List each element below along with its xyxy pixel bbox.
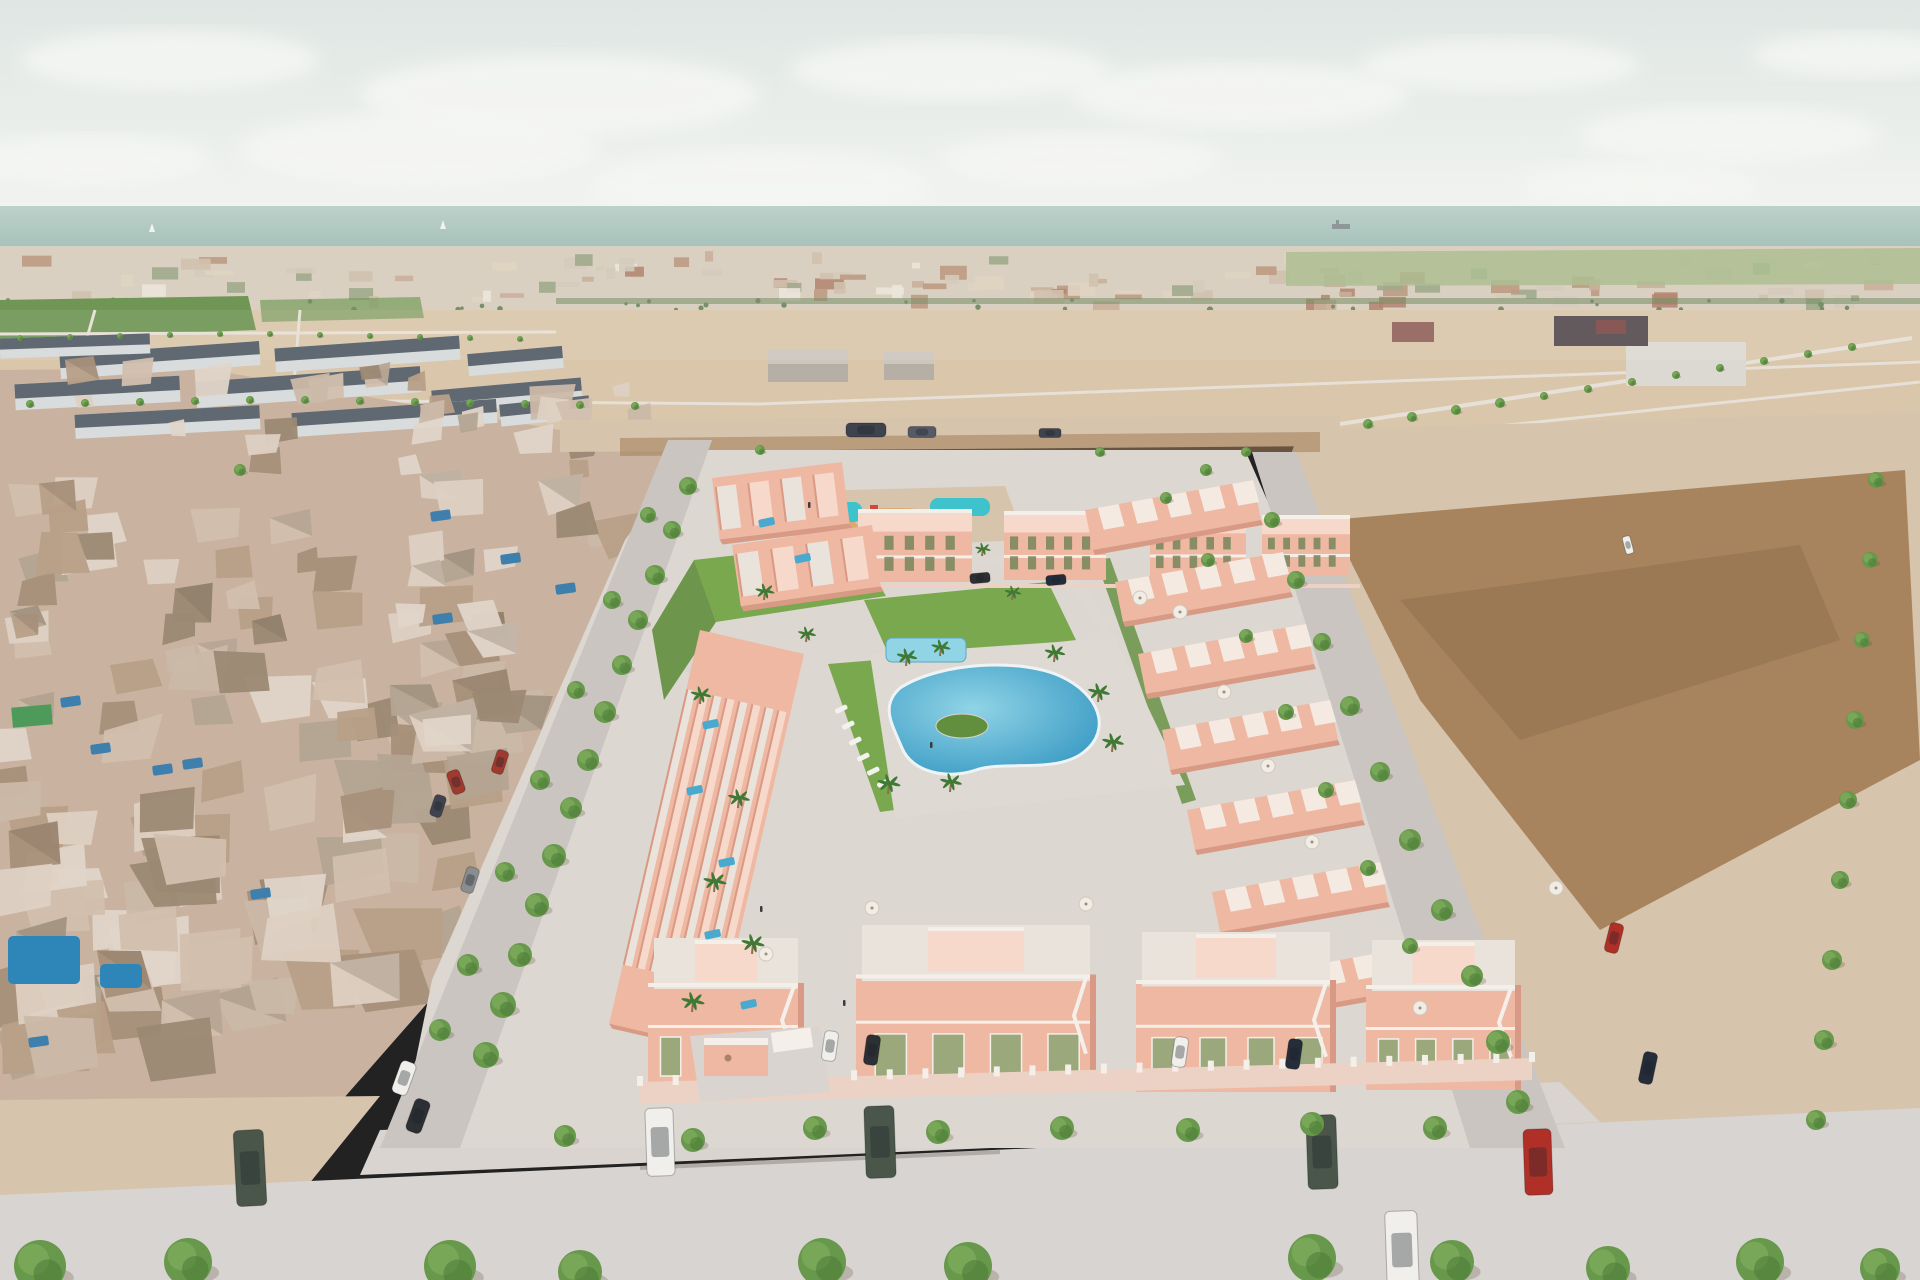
tree-shade	[585, 757, 597, 769]
car-roof	[857, 426, 875, 435]
apt-window	[1206, 537, 1214, 549]
apt-band	[1150, 554, 1246, 557]
band	[1366, 1027, 1521, 1030]
entrance-logo-plaque	[725, 1055, 732, 1062]
apt-window	[1314, 555, 1321, 567]
old-town-house	[245, 434, 281, 456]
tree-shade	[690, 1137, 703, 1150]
tree-shade	[634, 405, 638, 409]
person	[760, 906, 763, 912]
sea-water	[0, 206, 1920, 248]
entrance-wall	[704, 1042, 768, 1076]
tree-shade	[579, 404, 583, 408]
fence-pillar	[1493, 1053, 1499, 1063]
tree-shade	[1059, 1125, 1072, 1138]
apt-window	[1190, 556, 1198, 568]
old-town-house	[312, 591, 362, 630]
tree-shade	[29, 403, 33, 407]
tree-shade	[1822, 1038, 1833, 1049]
old-town-house	[423, 714, 472, 746]
tree-shade	[1244, 634, 1252, 642]
fence-pillar	[1529, 1052, 1535, 1062]
tree-shade	[1324, 788, 1333, 797]
band	[1136, 1025, 1336, 1028]
tree-shade	[169, 334, 172, 337]
apt-window	[1010, 556, 1018, 569]
tree-shade	[1439, 907, 1451, 919]
band	[856, 1021, 1096, 1024]
tree-shade	[812, 1125, 825, 1138]
tree-shade	[1447, 1257, 1471, 1280]
car	[846, 423, 886, 437]
person	[808, 502, 811, 508]
old-town-house	[122, 357, 154, 386]
car-roof	[1391, 1232, 1413, 1267]
front-villa	[856, 925, 1096, 1090]
tree-shade	[1206, 558, 1214, 566]
tree-shade	[69, 336, 72, 339]
tree-shade	[359, 400, 363, 404]
tree-shade	[519, 338, 522, 341]
green-roof	[11, 704, 53, 727]
tree-shade	[1846, 798, 1856, 808]
apt-window	[884, 557, 893, 571]
apt-window	[925, 557, 934, 571]
fence-pillar	[851, 1070, 857, 1080]
old-town-house	[472, 690, 527, 723]
sky	[0, 0, 1920, 219]
tree-shade	[1306, 1252, 1332, 1278]
fence-pillar	[1351, 1057, 1357, 1067]
apt-window	[1064, 536, 1072, 549]
tree-shade	[1495, 1039, 1508, 1052]
pool-island-planter	[936, 714, 988, 738]
old-town-house	[337, 707, 378, 741]
tree-shade	[84, 402, 88, 406]
car-roof	[1045, 430, 1055, 436]
apt-window	[946, 557, 955, 571]
tree-shade	[1719, 367, 1723, 371]
large-pool	[8, 936, 80, 984]
umbrella-pole	[1085, 903, 1088, 906]
entrance-plaza	[690, 1026, 830, 1102]
tree-shade	[636, 618, 647, 629]
old-town-house	[0, 728, 32, 763]
fence-pillar	[1244, 1060, 1250, 1070]
tree-shade	[670, 528, 680, 538]
tree-shade	[414, 401, 418, 405]
tree-shade	[1367, 423, 1373, 429]
car	[864, 1105, 896, 1178]
tree-shade	[1408, 944, 1417, 953]
fence-pillar	[1137, 1063, 1143, 1073]
tree-shade	[503, 870, 514, 881]
apt-window	[1329, 555, 1336, 567]
fence-pillar	[1386, 1056, 1392, 1066]
lagoon-pool	[889, 665, 1099, 774]
tree-shade	[19, 337, 22, 340]
tree-shade	[1455, 409, 1461, 415]
old-town-house	[213, 651, 269, 694]
apt-window	[1028, 536, 1036, 549]
villa-window	[660, 1037, 680, 1076]
tree-shade	[1348, 704, 1359, 715]
tree-shade	[1814, 1118, 1825, 1129]
tree-shade	[517, 952, 530, 965]
tree-shade	[686, 484, 696, 494]
tree-shade	[469, 402, 473, 406]
apt-window	[1064, 556, 1072, 569]
tree-shade	[935, 1129, 948, 1142]
tree-shade	[602, 709, 614, 721]
tree-shade	[1099, 451, 1105, 457]
old-town-house	[215, 545, 252, 578]
tree-shade	[1284, 710, 1293, 719]
umbrella-pole	[1555, 887, 1558, 890]
old-town-house	[458, 412, 479, 433]
fence-pillar	[1208, 1061, 1214, 1071]
tree-shade	[1270, 518, 1279, 527]
tree-shade	[500, 1002, 514, 1016]
cloud	[1360, 39, 1640, 91]
old-town-house	[313, 556, 357, 593]
roof-tower	[1196, 936, 1276, 978]
fence-pillar	[637, 1076, 643, 1086]
umbrella-pole	[1223, 691, 1226, 694]
tree-shade	[524, 403, 528, 407]
roof-tower	[928, 929, 1024, 972]
apt-window	[1268, 538, 1275, 550]
small-pool	[886, 638, 966, 662]
person	[843, 1000, 846, 1006]
apt-window	[925, 536, 934, 550]
tree-shade	[1631, 381, 1635, 385]
cloud	[1070, 63, 1410, 127]
car-roof	[651, 1127, 670, 1158]
cloud	[790, 40, 1110, 100]
tree-shade	[620, 663, 631, 674]
apt-window	[905, 536, 914, 550]
large-pool	[100, 964, 142, 988]
tree-shade	[1763, 360, 1767, 364]
tree-shade	[304, 399, 308, 403]
car	[1523, 1129, 1553, 1196]
tree-shade	[1165, 497, 1172, 504]
cornice	[856, 975, 1096, 979]
apt-parapet	[858, 509, 972, 513]
car	[1046, 574, 1067, 586]
umbrella-pole	[1419, 1007, 1422, 1010]
tree-shade	[239, 469, 246, 476]
tree-shade	[759, 449, 765, 455]
cloud	[1580, 107, 1880, 163]
fence-pillar	[922, 1068, 928, 1078]
tree-shade	[219, 333, 222, 336]
ship-hull	[1332, 224, 1350, 229]
fence-pillar	[1458, 1054, 1464, 1064]
car	[233, 1129, 267, 1206]
car-roof	[916, 428, 928, 435]
fence-pillar	[994, 1066, 1000, 1076]
tree-shade	[562, 1133, 574, 1145]
apt-window	[1190, 537, 1198, 549]
tree-shade	[419, 336, 422, 339]
tower-cap	[928, 927, 1024, 931]
tree-shade	[1587, 388, 1591, 392]
apt-window	[1298, 555, 1305, 567]
tree-shade	[249, 399, 253, 403]
cloud	[20, 30, 320, 90]
apt-window	[884, 536, 893, 550]
car-roof	[870, 1126, 890, 1158]
old-town-house	[359, 365, 382, 380]
apt-window	[1173, 556, 1181, 568]
tree-shade	[469, 337, 472, 340]
tree-shade	[1320, 640, 1330, 650]
tree-shade	[1432, 1125, 1445, 1138]
apt-window	[1082, 556, 1090, 569]
tree-shade	[1675, 374, 1679, 378]
tree-shade	[1860, 638, 1869, 647]
umbrella-pole	[765, 953, 768, 956]
fence-pillar	[1315, 1058, 1321, 1068]
tree-shade	[646, 513, 655, 522]
car-roof	[1312, 1135, 1332, 1168]
apt-window	[1314, 538, 1321, 550]
apt-window	[905, 557, 914, 571]
tree-shade	[465, 962, 477, 974]
car	[908, 427, 936, 438]
apt-window	[1046, 536, 1054, 549]
car	[645, 1108, 675, 1177]
tree-shade	[119, 335, 122, 338]
tower-cap	[1196, 934, 1276, 938]
entrance-wall-cap	[704, 1038, 768, 1045]
apt-window	[1283, 538, 1290, 550]
apt-window	[1028, 556, 1036, 569]
tree-shade	[1543, 395, 1547, 399]
tree-shade	[437, 1027, 449, 1039]
tree-shade	[1407, 837, 1419, 849]
old-town-house	[143, 559, 179, 584]
tree-shade	[1469, 973, 1481, 985]
tree-shade	[1294, 578, 1304, 588]
car	[970, 572, 991, 584]
old-town-house	[180, 928, 241, 991]
old-town-house	[140, 787, 195, 833]
apt-window	[946, 536, 955, 550]
umbrella-pole	[1267, 765, 1270, 768]
ship-mast	[1336, 220, 1339, 224]
cornice	[1136, 980, 1336, 984]
car-roof	[1529, 1147, 1548, 1177]
apt-window	[1010, 536, 1018, 549]
fence-pillar	[1065, 1064, 1071, 1074]
tree-shade	[319, 334, 322, 337]
fence-pillar	[1029, 1065, 1035, 1075]
person	[930, 742, 933, 748]
aerial-render	[0, 0, 1920, 1280]
cornice	[648, 983, 804, 987]
car	[1039, 429, 1061, 438]
tree-shade	[1807, 353, 1811, 357]
apt-window	[1298, 538, 1305, 550]
tree-shade	[369, 335, 372, 338]
cloud	[360, 55, 760, 135]
tree-shade	[1411, 416, 1417, 422]
old-town-house	[248, 977, 299, 1014]
render-canvas	[0, 0, 1920, 1280]
umbrella-pole	[1139, 597, 1142, 600]
tree-shade	[1874, 478, 1883, 487]
tree-shade	[1185, 1127, 1198, 1140]
tower-cap	[1413, 942, 1475, 946]
tree-shade	[568, 805, 580, 817]
tree-shade	[139, 401, 143, 405]
fence-pillar	[1422, 1055, 1428, 1065]
tree-shade	[1515, 1099, 1528, 1112]
umbrella-pole	[1311, 841, 1314, 844]
tree-shade	[1853, 718, 1863, 728]
fence-pillar	[1101, 1064, 1107, 1074]
umbrella-pole	[871, 907, 874, 910]
cloud	[1520, 163, 1760, 207]
tree-shade	[653, 573, 664, 584]
cloud	[940, 134, 1220, 186]
tree-shade	[538, 778, 549, 789]
sea	[0, 206, 1920, 248]
apt-band	[1004, 555, 1106, 558]
tree-shade	[1205, 469, 1212, 476]
tree-shade	[551, 853, 564, 866]
tree-shade	[194, 400, 198, 404]
tree-shade	[1851, 346, 1855, 350]
tree-shade	[483, 1052, 497, 1066]
car-roof	[240, 1151, 261, 1185]
tree-shade	[1830, 958, 1841, 969]
fence-pillar	[1279, 1059, 1285, 1069]
tree-shade	[269, 333, 272, 336]
umbrella-pole	[1179, 611, 1182, 614]
fence-pillar	[887, 1069, 893, 1079]
fence-pillar	[673, 1075, 679, 1085]
tree-shade	[574, 688, 584, 698]
tree-shade	[1309, 1121, 1322, 1134]
tree-shade	[1366, 866, 1375, 875]
apt-window	[1156, 556, 1164, 568]
tree-shade	[1499, 402, 1505, 408]
apt-window	[1223, 537, 1231, 549]
fence-pillar	[958, 1067, 964, 1077]
tree-shade	[1245, 451, 1251, 457]
tree-shade	[610, 598, 620, 608]
tree-shade	[1838, 878, 1848, 888]
band	[648, 1025, 804, 1028]
apt-window	[1329, 538, 1336, 550]
car	[1385, 1210, 1420, 1280]
cornice	[1366, 985, 1521, 989]
apt-roof	[858, 512, 972, 532]
tree-shade	[534, 902, 547, 915]
tree-shade	[1378, 770, 1389, 781]
apt-window	[1046, 556, 1054, 569]
apt-window	[1082, 536, 1090, 549]
tree-shade	[1868, 558, 1877, 567]
old-town-house	[190, 508, 240, 543]
